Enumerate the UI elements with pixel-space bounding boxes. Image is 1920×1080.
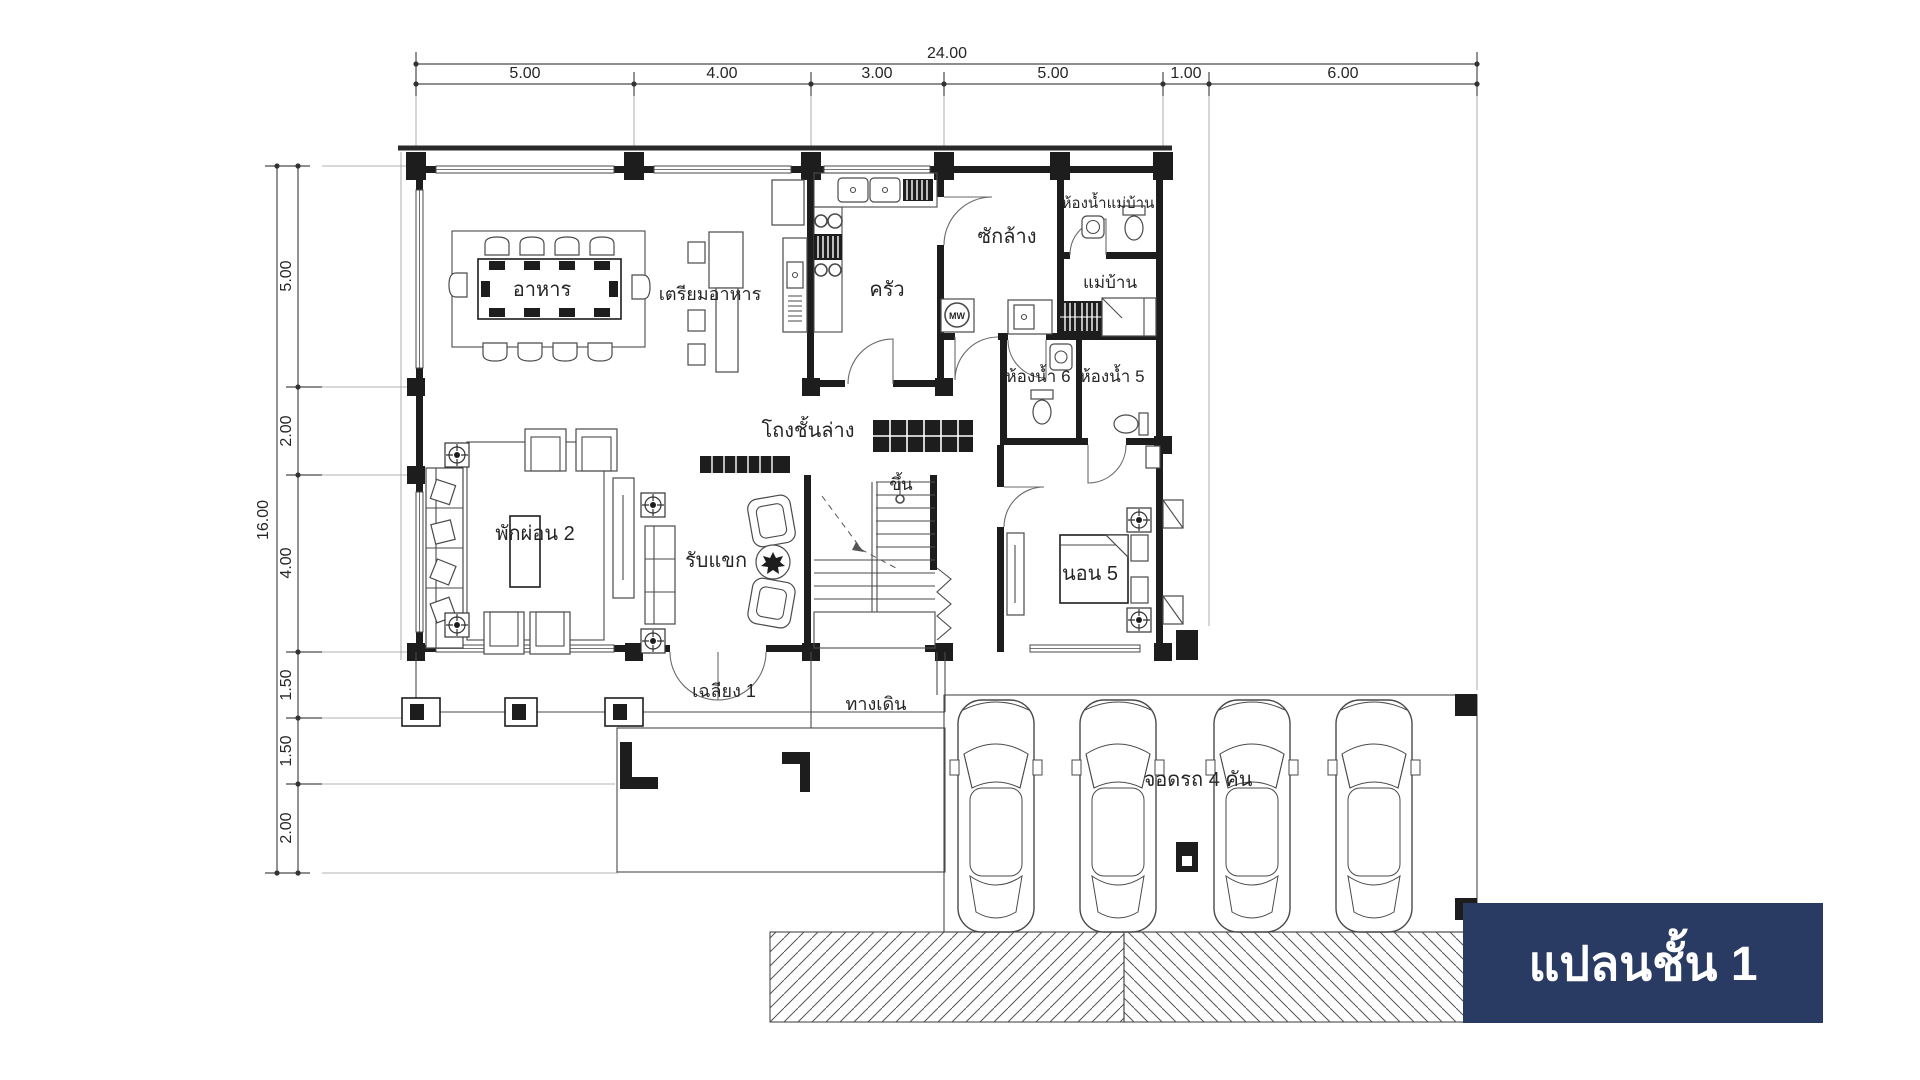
porch-terrace: เฉลียง 1 ทางเดิน: [402, 652, 945, 872]
dim-top-total: 24.00: [927, 45, 967, 62]
terrace-columns: [620, 742, 810, 792]
entry-terrace: [617, 728, 945, 872]
car-1: [950, 700, 1042, 932]
dim-left-seg-1: 5.00: [278, 260, 295, 291]
dim-top-seg-1: 5.00: [509, 65, 540, 82]
dim-top-seg-2: 4.00: [706, 65, 737, 82]
fan-icon: [1127, 508, 1151, 532]
porch-columns: [402, 698, 643, 726]
dim-top-seg-3: 3.00: [861, 65, 892, 82]
car-4: [1328, 700, 1420, 932]
stove-icon: [814, 214, 842, 276]
room-label-bath6: ห้องน้ำ 6: [1005, 364, 1070, 386]
ac-units: [1163, 500, 1183, 624]
dim-left-seg-4: 1.50: [278, 669, 295, 700]
room-label-living: พักผ่อน 2: [495, 523, 574, 545]
bathroom-6: ห้องน้ำ 6: [1005, 344, 1072, 424]
dim-top-seg-6: 6.00: [1327, 65, 1358, 82]
dim-left-seg-5: 1.50: [278, 735, 295, 766]
room-label-maid: แม่บ้าน: [1083, 273, 1138, 292]
microwave-icon: MW: [941, 299, 974, 332]
floor-plan-canvas: 24.00 5.00 4.00 3.00 5.00 1.00 6.00 16.0…: [0, 0, 1920, 1080]
dim-left-seg-3: 4.00: [278, 547, 295, 578]
fan-icon: [641, 629, 665, 653]
room-label-bath5: ห้องน้ำ 5: [1079, 364, 1144, 386]
room-label-walkway: ทางเดิน: [846, 694, 907, 714]
room-label-porch: เฉลียง 1: [692, 681, 756, 701]
car-3: [1206, 700, 1298, 932]
fan-icon: [445, 443, 469, 467]
room-label-maid-bath: ห้องน้ำแม่บ้าน: [1062, 192, 1155, 212]
room-label-prep: เตรียมอาหาร: [659, 284, 762, 304]
maid-bathroom: ห้องน้ำแม่บ้าน: [1062, 192, 1155, 240]
dim-left-seg-6: 2.00: [278, 812, 295, 843]
washing-machines: [1060, 301, 1104, 334]
room-label-guest: รับแขก: [685, 550, 747, 572]
paving-hatch: [770, 932, 1477, 1022]
room-label-laundry: ซักล้าง: [978, 226, 1037, 248]
dim-top-seg-5: 1.00: [1170, 65, 1201, 82]
dim-left-seg-2: 2.00: [278, 415, 295, 446]
guest-area: รับแขก: [641, 493, 797, 653]
room-label-hall: โถงชั้นล่าง: [761, 416, 854, 442]
carport: จอดรถ 4 คัน: [944, 630, 1477, 932]
fan-icon: [1127, 608, 1151, 632]
svg-text:MW: MW: [949, 311, 965, 321]
hall-cabinet: [873, 420, 973, 452]
fan-icon: [445, 613, 469, 637]
double-sink: [838, 178, 933, 202]
dimension-top: 24.00 5.00 4.00 3.00 5.00 1.00 6.00: [413, 45, 1479, 690]
dim-top-seg-4: 5.00: [1037, 65, 1068, 82]
title-box: แปลนชั้น 1: [1463, 903, 1823, 1023]
fan-icon: [641, 493, 665, 517]
room-label-kitchen: ครัว: [869, 279, 904, 301]
room-label-carport: จอดรถ 4 คัน: [1144, 769, 1253, 791]
plan-title: แปลนชั้น 1: [1528, 928, 1757, 991]
prep-area: เตรียมอาหาร: [659, 180, 807, 372]
bathroom-5: ห้องน้ำ 5: [1079, 364, 1160, 468]
car-2: [1072, 700, 1164, 932]
dim-left-total: 16.00: [255, 500, 272, 540]
console-cabinet: [700, 456, 790, 473]
room-label-dining: อาหาร: [513, 279, 572, 301]
room-label-bed5: นอน 5: [1062, 563, 1118, 585]
living-area: พักผ่อน 2: [426, 429, 634, 654]
room-label-stairs-up: ขึ้น: [889, 472, 913, 494]
dining-area: อาหาร: [449, 231, 650, 361]
